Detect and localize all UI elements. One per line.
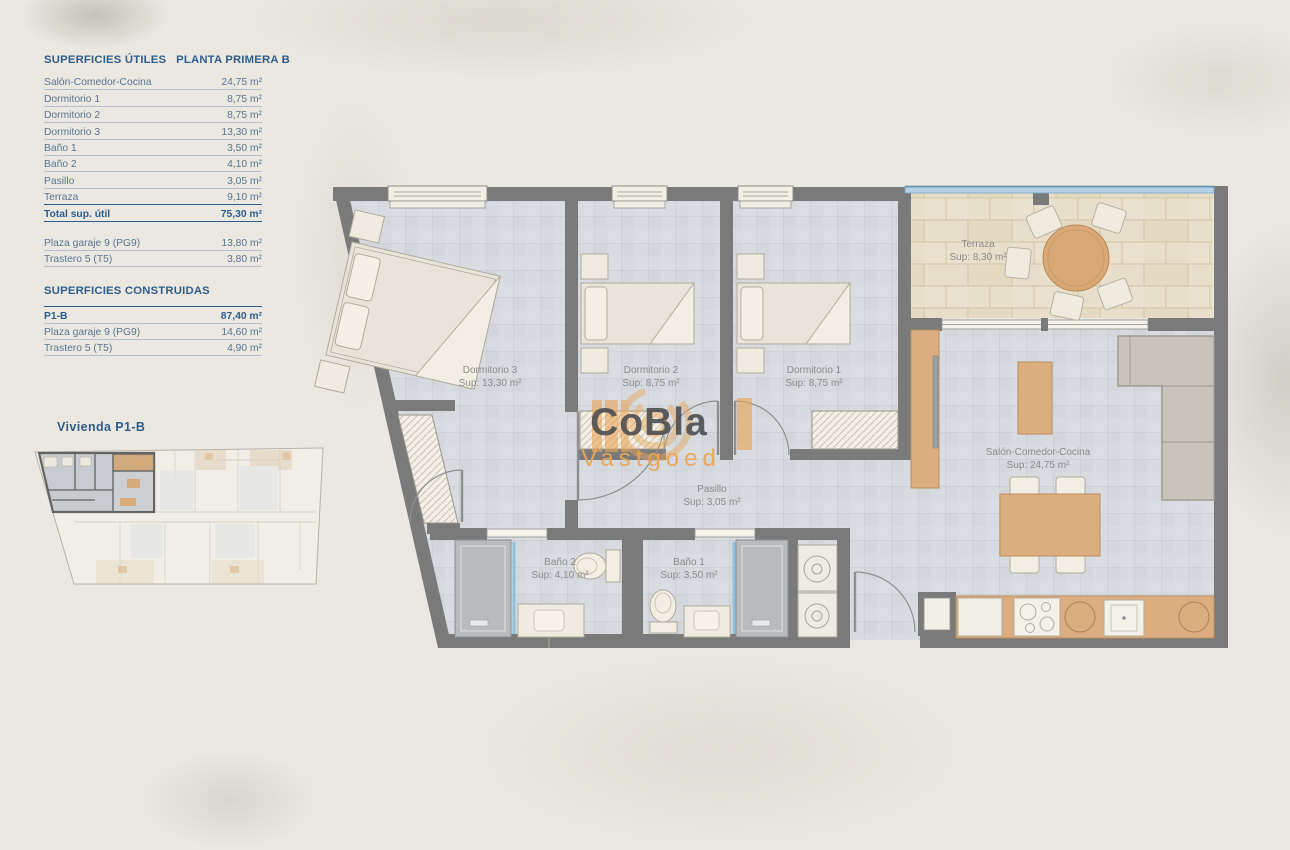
room-area: Sup: 4,10 m² xyxy=(531,569,588,582)
room-name: Dormitorio 2 xyxy=(622,364,679,377)
surface-row: Salón-Comedor-Cocina 24,75 m² xyxy=(44,74,262,90)
room-area: Sup: 3,50 m² xyxy=(660,569,717,582)
annex-rows: Plaza garaje 9 (PG9) 13,80 m² Trastero 5… xyxy=(44,235,262,268)
dining-chair xyxy=(1010,477,1039,496)
surface-row-value: 3,80 m² xyxy=(227,254,262,265)
room-label-dorm3: Dormitorio 3 Sup: 13,30 m² xyxy=(459,364,522,390)
surface-table-panel: SUPERFICIES ÚTILES PLANTA PRIMERA B Saló… xyxy=(44,54,262,356)
surface-row: Baño 2 4,10 m² xyxy=(44,156,262,172)
dining-chair xyxy=(1056,477,1085,496)
surface-row: Dormitorio 1 8,75 m² xyxy=(44,90,262,106)
dining-table xyxy=(1000,494,1100,556)
terrace-railing xyxy=(905,186,1214,193)
terrace-chair xyxy=(1004,247,1031,279)
surface-row-value: 9,10 m² xyxy=(227,192,262,203)
built-row-label: P1-B xyxy=(44,311,67,322)
dining-chair xyxy=(1010,554,1039,573)
surface-row: Baño 1 3,50 m² xyxy=(44,140,262,156)
brand-watermark-text: CoBla xyxy=(590,401,708,445)
surface-row: Pasillo 3,05 m² xyxy=(44,172,262,188)
surface-row-label: Pasillo xyxy=(44,176,74,187)
room-name: Baño 2 xyxy=(531,556,588,569)
dryer xyxy=(798,593,837,637)
surface-row: Terraza 9,10 m² xyxy=(44,189,262,205)
cooktop xyxy=(1014,598,1060,636)
surface-row-value: 8,75 m² xyxy=(227,94,262,105)
surface-row-label: Terraza xyxy=(44,192,78,203)
tv xyxy=(933,356,938,448)
wardrobe-dorm1 xyxy=(812,411,898,449)
bath2-sliding-door xyxy=(487,529,547,537)
surface-row: Dormitorio 2 8,75 m² xyxy=(44,107,262,123)
room-name: Salón-Comedor-Cocina xyxy=(986,446,1091,459)
surface-row-label: Dormitorio 2 xyxy=(44,110,100,121)
room-label-terrace: Terraza Sup: 8,30 m² xyxy=(949,238,1006,264)
built-row-value: 14,60 m² xyxy=(221,327,262,338)
overview-terrace xyxy=(113,454,154,471)
surface-row-label: Baño 2 xyxy=(44,159,77,170)
surface-row-label: Plaza garaje 9 (PG9) xyxy=(44,238,140,249)
room-area: Sup: 8,30 m² xyxy=(949,251,1006,264)
dining-chair xyxy=(1056,554,1085,573)
room-label-living: Salón-Comedor-Cocina Sup: 24,75 m² xyxy=(986,446,1091,472)
surface-row-value: 13,30 m² xyxy=(221,127,262,138)
surface-row-label: Dormitorio 1 xyxy=(44,94,100,105)
surface-row-label: Trastero 5 (T5) xyxy=(44,254,112,265)
room-name: Dormitorio 3 xyxy=(459,364,522,377)
built-row-value: 4,90 m² xyxy=(227,343,262,354)
surface-row-label: Dormitorio 3 xyxy=(44,127,100,138)
surface-row-value: 24,75 m² xyxy=(221,77,262,88)
total-value: 75,30 m² xyxy=(221,209,262,220)
room-label-hall: Pasillo Sup: 3,05 m² xyxy=(683,483,740,509)
useful-surfaces-title: SUPERFICIES ÚTILES xyxy=(44,54,166,66)
surface-row-label: Salón-Comedor-Cocina xyxy=(44,77,152,88)
built-row-label: Plaza garaje 9 (PG9) xyxy=(44,327,140,338)
surface-row-value: 3,05 m² xyxy=(227,176,262,187)
bath1-sliding-door xyxy=(695,529,755,537)
total-label: Total sup. útil xyxy=(44,209,110,220)
room-name: Baño 1 xyxy=(660,556,717,569)
overview-highlighted-unit xyxy=(39,453,154,512)
built-row-label: Trastero 5 (T5) xyxy=(44,343,112,354)
built-row: Trastero 5 (T5) 4,90 m² xyxy=(44,340,262,356)
room-label-bath2: Baño 2 Sup: 4,10 m² xyxy=(531,556,588,582)
surface-row-value: 3,50 m² xyxy=(227,143,262,154)
overview-title: Vivienda P1-B xyxy=(57,420,145,434)
toilet-bath1 xyxy=(650,590,676,622)
room-label-bath1: Baño 1 Sup: 3,50 m² xyxy=(660,556,717,582)
room-label-dorm2: Dormitorio 2 Sup: 8,75 m² xyxy=(622,364,679,390)
surface-row: Dormitorio 3 13,30 m² xyxy=(44,123,262,139)
surface-row-label: Baño 1 xyxy=(44,143,77,154)
room-name: Pasillo xyxy=(683,483,740,496)
coffee-table xyxy=(1018,362,1052,434)
total-surface-row: Total sup. útil 75,30 m² xyxy=(44,205,262,221)
fridge xyxy=(958,598,1002,636)
brand-watermark-subtext: Vastgoed xyxy=(581,445,721,473)
toilet-tank-bath2 xyxy=(606,550,620,582)
built-row: Plaza garaje 9 (PG9) 14,60 m² xyxy=(44,324,262,340)
room-label-dorm1: Dormitorio 1 Sup: 8,75 m² xyxy=(785,364,842,390)
room-name: Dormitorio 1 xyxy=(785,364,842,377)
panel-header: SUPERFICIES ÚTILES PLANTA PRIMERA B xyxy=(44,54,290,66)
floor-title: PLANTA PRIMERA B xyxy=(176,54,290,66)
room-name: Terraza xyxy=(949,238,1006,251)
storage-door xyxy=(924,598,950,630)
room-area: Sup: 3,05 m² xyxy=(683,496,740,509)
surface-row: Plaza garaje 9 (PG9) 13,80 m² xyxy=(44,235,262,251)
built-row: P1-B 87,40 m² xyxy=(44,306,262,323)
surface-row-value: 4,10 m² xyxy=(227,159,262,170)
built-surfaces-title: SUPERFICIES CONSTRUIDAS xyxy=(44,285,262,297)
floorplan-sheet: { "panel": { "title": "SUPERFICIES ÚTILE… xyxy=(0,0,1290,840)
room-area: Sup: 8,75 m² xyxy=(785,377,842,390)
terrace-table xyxy=(1043,225,1109,291)
room-area: Sup: 24,75 m² xyxy=(986,459,1091,472)
built-row-value: 87,40 m² xyxy=(221,311,262,322)
laundry-appliances xyxy=(798,545,837,637)
kitchen-counter xyxy=(956,596,1214,638)
surface-row-value: 8,75 m² xyxy=(227,110,262,121)
room-area: Sup: 13,30 m² xyxy=(459,377,522,390)
surface-row: Trastero 5 (T5) 3,80 m² xyxy=(44,251,262,267)
room-area: Sup: 8,75 m² xyxy=(622,377,679,390)
building-overview-plan xyxy=(35,448,323,584)
surface-row-value: 13,80 m² xyxy=(221,238,262,249)
